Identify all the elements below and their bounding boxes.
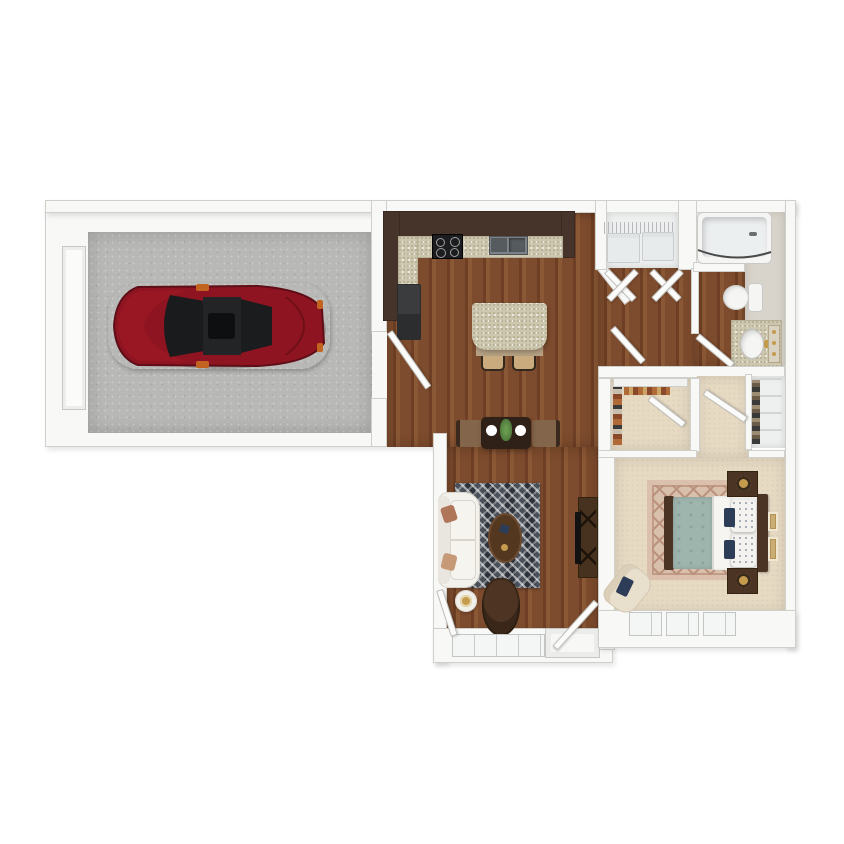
sink-basin (491, 238, 507, 252)
television (575, 512, 581, 564)
burner (436, 248, 446, 258)
table-decor-book (499, 524, 510, 535)
toilet (723, 283, 763, 312)
linen-items (752, 380, 760, 444)
floor-plan-image (0, 0, 844, 844)
bedroom-window (666, 612, 699, 636)
red-sedan-car (108, 283, 330, 369)
lamp-shade (460, 595, 472, 607)
bedroom-window (703, 612, 736, 636)
dining-table (481, 417, 531, 449)
sofa (438, 492, 480, 588)
counter-left (398, 236, 418, 286)
bathroom-mirror (768, 325, 780, 363)
console-x-leg (580, 542, 596, 570)
bed-headboard (757, 494, 768, 572)
wall-frame (768, 512, 778, 531)
tv-console (578, 497, 598, 578)
shower-rod (697, 246, 772, 262)
laundry-bath-wall (678, 200, 697, 270)
walkin-right-wall (690, 378, 700, 452)
plant-centerpiece (500, 419, 512, 441)
coffee-table (488, 513, 522, 563)
garage-door (62, 246, 86, 410)
lamp (736, 476, 751, 491)
burner (436, 238, 445, 247)
sink-basin (509, 238, 525, 252)
bath-left-wall (691, 268, 699, 334)
dining-chair (532, 420, 560, 447)
accent-pillow (724, 508, 735, 527)
right-outer-wall (785, 200, 796, 648)
bedroom-window (629, 612, 662, 636)
nightstand (727, 568, 758, 594)
laundry-left-wall (595, 200, 607, 270)
kitchen-island (472, 303, 547, 350)
counter-end-panel (561, 211, 575, 258)
mirror-light (772, 341, 776, 345)
mirror-light (772, 352, 776, 356)
hanging-clothes (613, 387, 622, 445)
mirror-light (772, 330, 776, 334)
closet-bottom-wall-left (598, 450, 697, 458)
dryer (642, 232, 674, 261)
range-stove (432, 234, 463, 259)
kitchen-garage-wall-lower (371, 398, 387, 447)
toilet-tank (748, 283, 763, 312)
nightstand (727, 471, 758, 497)
counter-top (400, 236, 563, 258)
upper-cabinets-top (383, 211, 575, 238)
bathtub (697, 212, 772, 264)
vanity-sink (740, 329, 764, 359)
hanging-clothes (624, 387, 670, 395)
accent-pillow (724, 540, 735, 559)
table-decor-bowl (501, 544, 508, 551)
burner (450, 248, 459, 257)
wall-frame (768, 537, 778, 561)
armchair-pillow (616, 576, 635, 597)
closet-shelf (613, 378, 688, 387)
double-sink (489, 236, 528, 255)
walkin-left-wall (598, 378, 611, 452)
bed-duvet (673, 497, 713, 569)
linen-left-wall (745, 374, 752, 450)
burner (450, 237, 460, 247)
place-setting (515, 425, 526, 436)
living-windows (452, 634, 545, 657)
refrigerator (397, 284, 421, 340)
console-x-leg (580, 505, 596, 533)
side-table-lamp (455, 590, 477, 612)
closet-bottom-wall-right (748, 450, 785, 458)
dining-chair (456, 420, 484, 447)
accent-chair (482, 578, 520, 636)
toilet-bowl (723, 285, 749, 310)
washer (607, 233, 640, 263)
lamp (736, 573, 751, 588)
place-setting (486, 425, 497, 436)
tub-faucet (749, 232, 757, 236)
